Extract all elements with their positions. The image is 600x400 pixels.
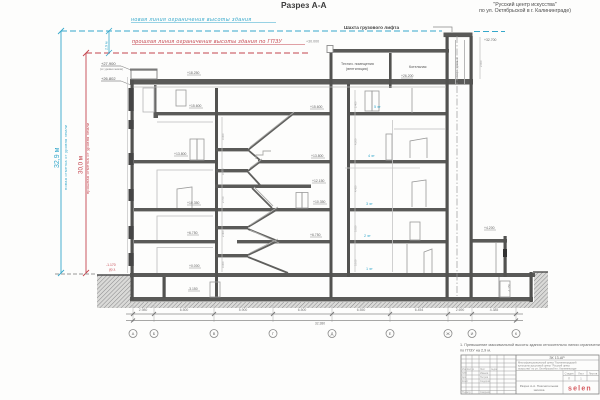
svg-text:4 эт: 4 эт <box>368 154 375 158</box>
svg-text:32.380: 32.380 <box>315 322 325 326</box>
svg-text:новая отметка от уровня земли: новая отметка от уровня земли <box>63 125 68 190</box>
svg-text:2.000: 2.000 <box>479 60 483 67</box>
svg-text:+13.800: +13.800 <box>311 154 323 158</box>
svg-text:32,9 м: 32,9 м <box>54 147 61 168</box>
svg-text:+26.200: +26.200 <box>401 74 413 78</box>
svg-text:"Русский центр искусства": "Русский центр искусства" <box>493 1 556 8</box>
svg-text:записка: записка <box>534 388 545 392</box>
svg-text:+6.750: +6.750 <box>310 233 321 237</box>
svg-text:ур.з.: ур.з. <box>109 268 116 272</box>
svg-text:30,0 м: 30,0 м <box>78 156 85 174</box>
svg-text:ГИП: ГИП <box>462 372 467 375</box>
svg-text:+27.900: +27.900 <box>101 61 116 66</box>
svg-text:3.050: 3.050 <box>354 225 358 232</box>
svg-text:И: И <box>471 332 474 336</box>
svg-text:+4.200: +4.200 <box>484 226 495 230</box>
svg-text:3.300: 3.300 <box>221 168 225 175</box>
svg-text:Лист: Лист <box>578 372 584 376</box>
svg-text:прошлая отметка от уровня земл: прошлая отметка от уровня земли <box>85 123 90 194</box>
svg-text:3.300: 3.300 <box>221 261 225 268</box>
svg-text:№док: №док <box>491 368 498 371</box>
svg-text:по ГПЗУ на 2,9 м.: по ГПЗУ на 2,9 м. <box>460 349 491 353</box>
svg-text:+10.350: +10.350 <box>313 200 325 204</box>
svg-text:2.690: 2.690 <box>456 308 465 312</box>
svg-text:+30.000: +30.000 <box>306 40 319 44</box>
svg-text:Иванов: Иванов <box>480 372 489 375</box>
svg-text:+13.800: +13.800 <box>174 152 186 156</box>
svg-text:(вентиляция): (вентиляция) <box>346 67 368 71</box>
svg-text:2.400: 2.400 <box>354 101 358 108</box>
svg-text:П: П <box>568 377 570 381</box>
svg-text:+10.350: +10.350 <box>187 201 199 205</box>
svg-text:3.100: 3.100 <box>354 259 358 266</box>
svg-text:Лист: Лист <box>480 368 486 371</box>
svg-text:1. Превышение максимальной выс: 1. Превышение максимальной высоты здания… <box>460 343 600 347</box>
svg-text:Смирнов: Смирнов <box>480 391 491 394</box>
svg-text:4.450: 4.450 <box>354 185 358 192</box>
svg-text:Стадия: Стадия <box>565 372 574 376</box>
svg-text:-3.150: -3.150 <box>188 287 198 291</box>
svg-text:3.300: 3.300 <box>221 133 225 140</box>
svg-text:Шахта грузового лифта: Шахта грузового лифта <box>344 24 399 30</box>
svg-text:Разрез А-А: Разрез А-А <box>281 0 327 10</box>
svg-text:+6.750: +6.750 <box>187 231 198 235</box>
svg-text:В: В <box>213 332 216 336</box>
svg-text:1 эт: 1 эт <box>366 267 373 271</box>
svg-text:3 эт: 3 эт <box>366 202 373 206</box>
svg-text:+26.802: +26.802 <box>101 76 116 81</box>
svg-text:4.385: 4.385 <box>490 308 499 312</box>
svg-text:2.400: 2.400 <box>221 230 225 237</box>
svg-text:новая линия ограничения высоты: новая линия ограничения высоты здания <box>131 17 252 23</box>
svg-text:2,9 м: 2,9 м <box>105 41 109 50</box>
svg-text:искусства" по ул. Октябрьской: искусства" по ул. Октябрьской в г. Калин… <box>518 367 577 371</box>
svg-text:2 эт: 2 эт <box>364 234 371 238</box>
svg-text:Ж: Ж <box>446 332 450 336</box>
svg-text:+12.150: +12.150 <box>312 179 324 183</box>
svg-text:Сидоров: Сидоров <box>480 380 490 383</box>
svg-text:Е: Е <box>389 332 392 336</box>
svg-text:2.980: 2.980 <box>139 308 148 312</box>
svg-text:Технич. помещения: Технич. помещения <box>341 62 374 66</box>
svg-text:+18.250: +18.250 <box>187 71 199 75</box>
svg-text:А: А <box>132 332 135 336</box>
svg-text:6.550: 6.550 <box>357 308 366 312</box>
svg-text:ЗК 13-АР: ЗК 13-АР <box>549 356 565 360</box>
svg-text:6.500: 6.500 <box>298 308 307 312</box>
svg-text:+32.700: +32.700 <box>484 38 496 42</box>
svg-text:selen: selen <box>568 386 592 393</box>
svg-text:Д: Д <box>331 332 334 336</box>
svg-text:1 лифт грузовой: 1 лифт грузовой <box>455 57 459 80</box>
svg-text:Кол.уч: Кол.уч <box>467 368 475 371</box>
svg-text:+15.600: +15.600 <box>310 105 322 109</box>
svg-text:Г: Г <box>272 332 274 336</box>
svg-text:-1.150: -1.150 <box>507 284 511 292</box>
svg-text:6.454: 6.454 <box>415 308 424 312</box>
svg-text:+15.600: +15.600 <box>189 104 201 108</box>
svg-text:Конст: Конст <box>462 380 469 383</box>
svg-text:по ул. Октябрьской в г. Калини: по ул. Октябрьской в г. Калининграде) <box>479 7 571 14</box>
svg-text:2.700: 2.700 <box>221 196 225 203</box>
svg-text:6.500: 6.500 <box>180 308 189 312</box>
svg-text:+0.000: +0.000 <box>189 264 200 268</box>
svg-text:4.200: 4.200 <box>354 138 358 145</box>
svg-text:Н.контр: Н.контр <box>462 391 471 394</box>
svg-text:Листов: Листов <box>589 372 598 376</box>
svg-text:5.900: 5.900 <box>239 308 248 312</box>
svg-text:Петров: Петров <box>480 376 489 379</box>
svg-text:Котельная: Котельная <box>409 65 426 69</box>
svg-text:5 эт: 5 эт <box>374 105 381 109</box>
svg-text:(от уровня земли): (от уровня земли) <box>100 67 123 71</box>
svg-text:-1.170: -1.170 <box>106 263 116 267</box>
svg-text:прошлая линия ограничения высо: прошлая линия ограничения высоты здания … <box>132 39 282 45</box>
